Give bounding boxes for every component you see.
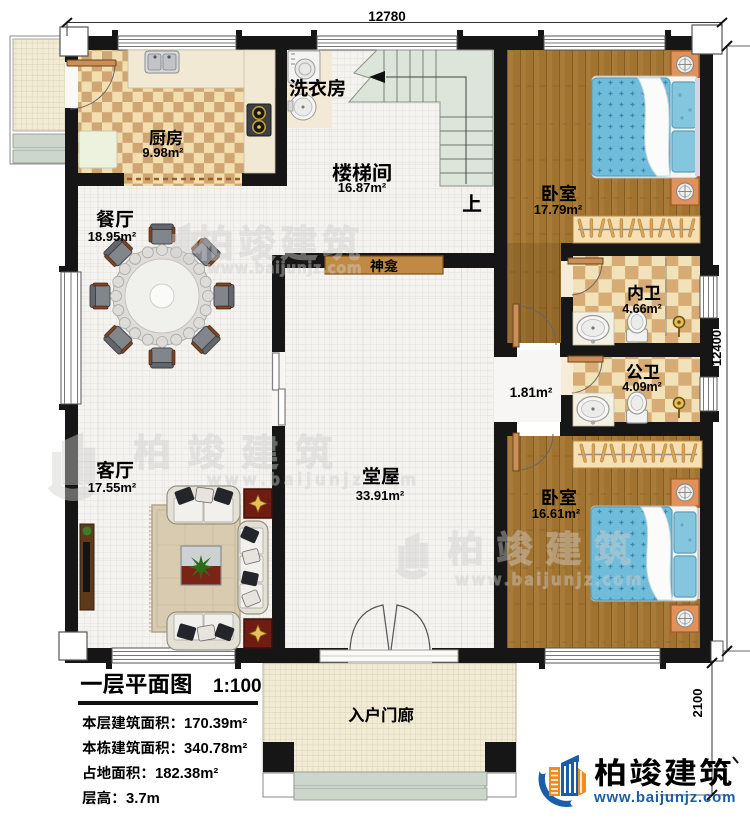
svg-text:4.66m²: 4.66m² [622,302,662,316]
svg-text:4.09m²: 4.09m² [622,380,662,394]
svg-text:12400: 12400 [709,330,724,366]
svg-text:182.38m²: 182.38m² [155,766,218,782]
svg-text:3.7m: 3.7m [126,791,160,807]
svg-text:9.98m²: 9.98m² [142,145,184,160]
svg-text:1.81m²: 1.81m² [510,385,553,400]
svg-text:170.39m²: 170.39m² [184,716,247,732]
svg-text:17.79m²: 17.79m² [534,202,583,217]
svg-text:12780: 12780 [368,9,406,24]
svg-text:33.91m²: 33.91m² [356,488,405,503]
svg-text:340.78m²: 340.78m² [184,741,247,757]
svg-text:www.baijunjz.com: www.baijunjz.com [593,789,736,806]
svg-text:16.87m²: 16.87m² [338,180,387,195]
svg-text:2100: 2100 [690,689,705,718]
svg-text:1:100: 1:100 [213,676,262,697]
svg-text:17.55m²: 17.55m² [88,480,137,495]
svg-text:16.61m²: 16.61m² [532,506,581,521]
svg-text:18.95m²: 18.95m² [88,229,137,244]
